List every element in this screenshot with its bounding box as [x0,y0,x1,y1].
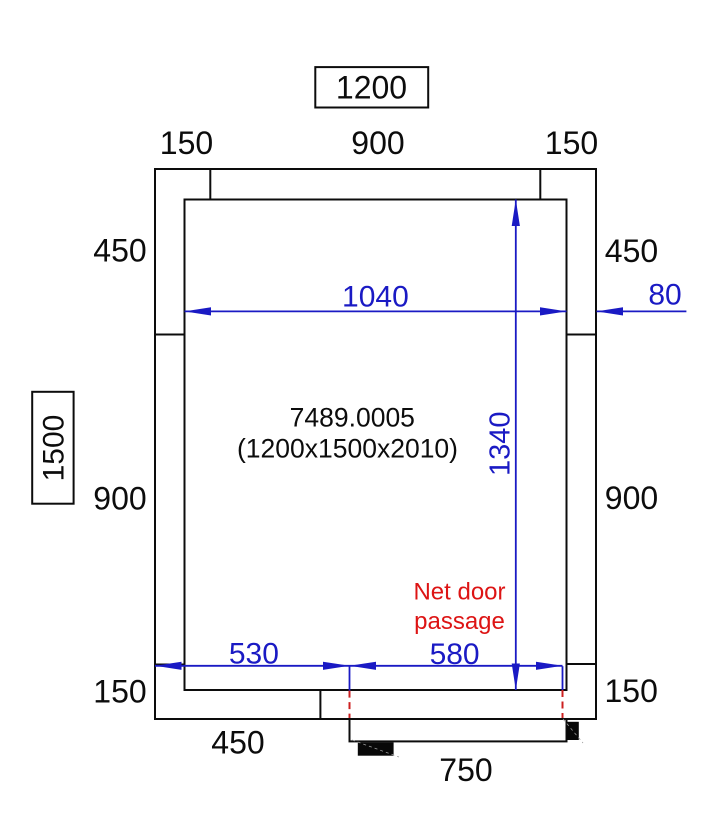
svg-text:1040: 1040 [342,281,409,314]
svg-text:900: 900 [93,481,146,517]
svg-text:1340: 1340 [485,412,517,477]
svg-text:450: 450 [93,233,146,269]
svg-text:passage: passage [414,608,505,635]
svg-text:80: 80 [648,279,681,312]
svg-text:(1200x1500x2010): (1200x1500x2010) [237,434,458,464]
svg-text:450: 450 [211,725,264,761]
svg-text:900: 900 [605,480,658,516]
svg-text:7489.0005: 7489.0005 [290,403,415,433]
svg-text:900: 900 [351,125,404,161]
svg-text:150: 150 [93,674,146,710]
svg-text:750: 750 [439,752,492,788]
svg-text:150: 150 [160,125,213,161]
svg-text:1200: 1200 [336,70,407,106]
svg-text:150: 150 [605,673,658,709]
svg-text:150: 150 [545,125,598,161]
svg-text:Net door: Net door [413,579,505,606]
svg-text:530: 530 [229,637,279,670]
svg-text:580: 580 [430,638,480,671]
svg-text:1500: 1500 [38,415,71,482]
svg-text:450: 450 [605,233,658,269]
